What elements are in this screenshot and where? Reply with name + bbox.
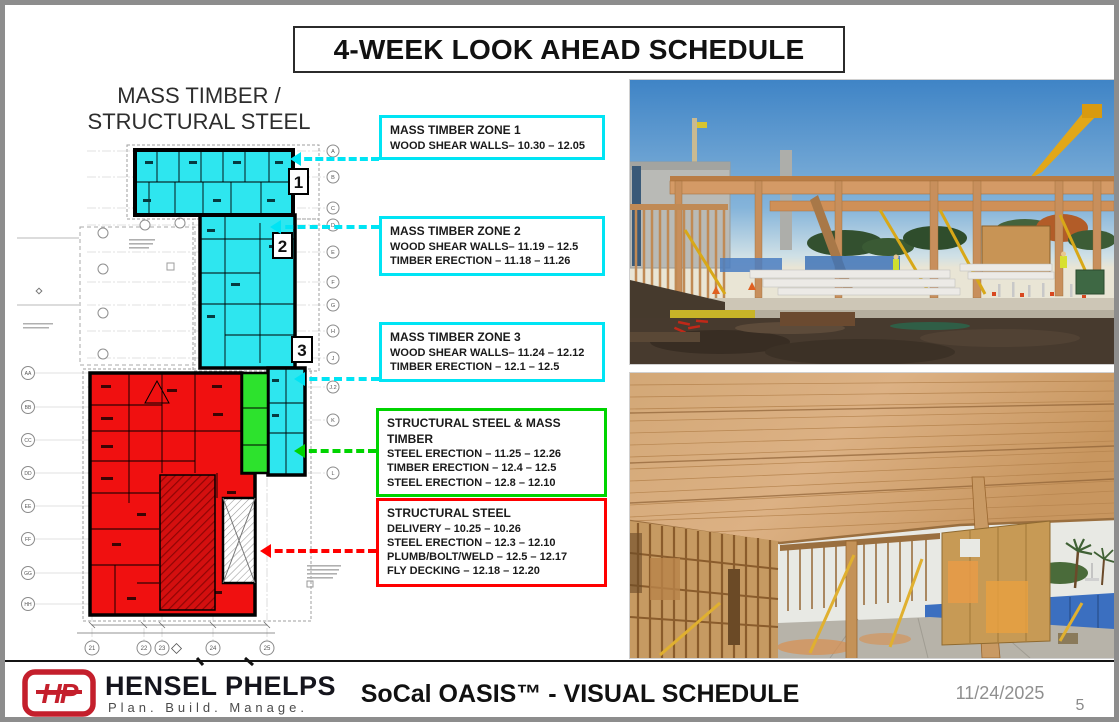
svg-text:22: 22: [141, 646, 148, 652]
callout-line: TIMBER ERECTION – 12.1 – 12.5: [390, 360, 594, 374]
svg-text:HH: HH: [24, 602, 32, 608]
callout-line: DELIVERY – 10.25 – 10.26: [387, 522, 596, 536]
svg-text:23: 23: [159, 646, 166, 652]
plan-zone-structural-steel: [90, 373, 268, 615]
callout-steel-and-mass-timber: STRUCTURAL STEEL & MASS TIMBER STEEL ERE…: [376, 408, 607, 497]
svg-text:FF: FF: [25, 537, 31, 543]
svg-text:J: J: [332, 356, 335, 362]
callout-title: MASS TIMBER ZONE 2: [390, 224, 594, 240]
plan-canopy-area: [23, 218, 195, 365]
footer-divider: [5, 660, 1114, 662]
svg-text:A: A: [331, 149, 335, 155]
callout-line: WOOD SHEAR WALLS– 11.19 – 12.5: [390, 240, 594, 254]
callout-line: PLUMB/BOLT/WELD – 12.5 – 12.17: [387, 550, 596, 564]
page-number: 5: [1065, 697, 1095, 715]
svg-text:MASS TIMBER /: MASS TIMBER /: [117, 83, 281, 108]
floor-plan: MASS TIMBER / STRUCTURAL STEEL: [17, 73, 375, 667]
callout-line: STEEL ERECTION – 11.25 – 12.26: [387, 447, 596, 461]
svg-text:GG: GG: [24, 571, 32, 577]
callout-line: FLY DECKING – 12.18 – 12.20: [387, 564, 596, 578]
svg-text:STRUCTURAL STEEL: STRUCTURAL STEEL: [88, 109, 311, 134]
svg-text:EE: EE: [25, 504, 32, 510]
callout-line: STEEL ERECTION – 12.8 – 12.10: [387, 476, 596, 490]
svg-text:E: E: [331, 250, 335, 256]
callout-line: TIMBER ERECTION – 12.4 – 12.5: [387, 461, 596, 475]
plan-zone-1: [135, 150, 293, 215]
callout-title: MASS TIMBER ZONE 3: [390, 330, 594, 346]
callout-line: WOOD SHEAR WALLS– 11.24 – 12.12: [390, 346, 594, 360]
photo-mass-timber-interior: [629, 372, 1115, 659]
plan-note: [307, 565, 341, 587]
leader-arrow-steel-timber: [297, 449, 376, 453]
slide-date: 11/24/2025: [940, 683, 1060, 704]
slide-title: 4-WEEK LOOK AHEAD SCHEDULE: [334, 34, 805, 66]
svg-text:AA: AA: [25, 371, 32, 377]
callout-line: WOOD SHEAR WALLS– 10.30 – 12.05: [390, 139, 594, 153]
slide: 4-WEEK LOOK AHEAD SCHEDULE MASS TIMBER /…: [0, 0, 1119, 722]
callout-title: MASS TIMBER ZONE 1: [390, 123, 594, 139]
leader-arrow-steel: [263, 549, 376, 553]
slide-title-box: 4-WEEK LOOK AHEAD SCHEDULE: [293, 26, 845, 73]
svg-text:H: H: [331, 329, 335, 335]
callout-title: STRUCTURAL STEEL: [387, 506, 596, 522]
hensel-phelps-logo: HP: [22, 669, 96, 717]
callout-line: STEEL ERECTION – 12.3 – 12.10: [387, 536, 596, 550]
svg-text:CC: CC: [24, 438, 32, 444]
svg-text:24: 24: [210, 646, 217, 652]
svg-text:3: 3: [297, 341, 306, 360]
callout-mass-timber-zone-1: MASS TIMBER ZONE 1 WOOD SHEAR WALLS– 10.…: [379, 115, 605, 160]
svg-text:J.2: J.2: [329, 385, 336, 391]
leader-arrow-zone-3: [297, 377, 379, 381]
callout-line: TIMBER ERECTION – 11.18 – 11.26: [390, 254, 594, 268]
svg-text:21: 21: [89, 646, 96, 652]
svg-text:G: G: [331, 303, 335, 309]
svg-text:DD: DD: [24, 471, 32, 477]
svg-text:B: B: [331, 175, 335, 181]
company-name: HENSEL PHELPS: [105, 671, 336, 702]
leader-arrow-zone-2: [273, 225, 379, 229]
svg-text:25: 25: [264, 646, 271, 652]
company-tagline: Plan. Build. Manage.: [108, 700, 308, 715]
svg-text:1: 1: [294, 173, 303, 192]
svg-text:2: 2: [278, 237, 287, 256]
svg-text:L: L: [331, 471, 334, 477]
svg-text:BB: BB: [25, 405, 32, 411]
svg-text:C: C: [331, 206, 335, 212]
plan-heading: MASS TIMBER / STRUCTURAL STEEL: [88, 83, 311, 134]
leader-arrow-zone-1: [293, 157, 379, 161]
callout-mass-timber-zone-2: MASS TIMBER ZONE 2 WOOD SHEAR WALLS– 11.…: [379, 216, 605, 276]
callout-title: STRUCTURAL STEEL & MASS TIMBER: [387, 416, 596, 447]
photo2-ceiling: [630, 373, 1114, 543]
photo-timber-erection-exterior: [629, 79, 1115, 365]
plan-dimensions: [77, 622, 275, 665]
callout-mass-timber-zone-3: MASS TIMBER ZONE 3 WOOD SHEAR WALLS– 11.…: [379, 322, 605, 382]
svg-text:K: K: [331, 418, 335, 424]
callout-structural-steel: STRUCTURAL STEEL DELIVERY – 10.25 – 10.2…: [376, 498, 607, 587]
footer-title: SoCal OASIS™ - VISUAL SCHEDULE: [345, 680, 815, 709]
